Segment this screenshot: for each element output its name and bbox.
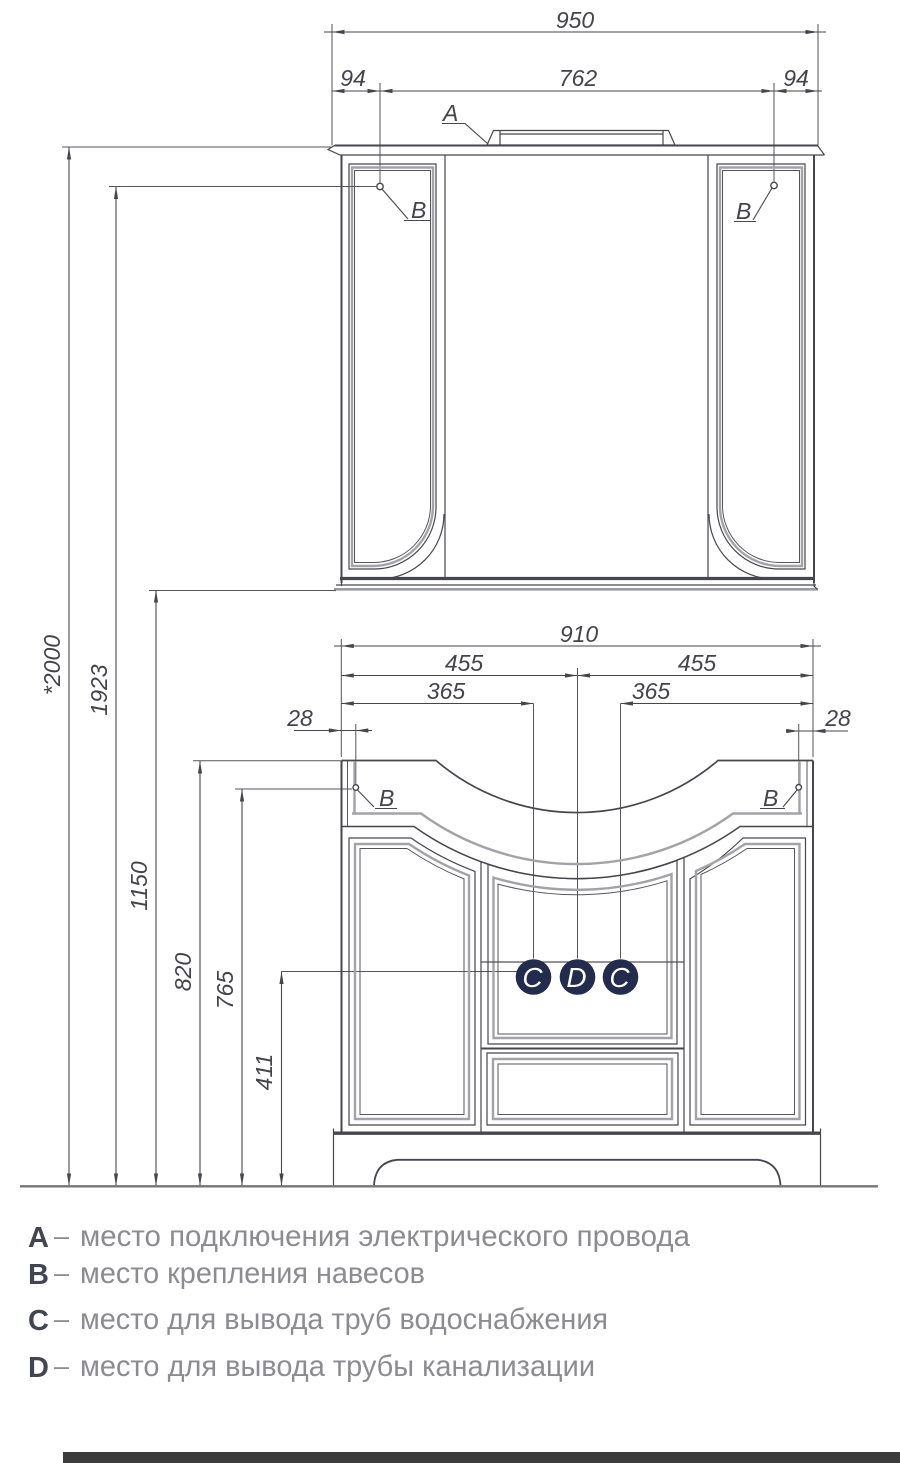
svg-text:C: C: [28, 1305, 49, 1337]
svg-text:–: –: [54, 1351, 69, 1381]
svg-text:28: 28: [824, 705, 851, 731]
svg-text:B: B: [763, 785, 778, 811]
svg-text:B: B: [28, 1259, 49, 1291]
svg-text:C: C: [522, 962, 543, 993]
svg-text:D: D: [566, 962, 586, 993]
svg-text:B: B: [379, 785, 394, 811]
svg-text:94: 94: [340, 65, 366, 91]
svg-text:1150: 1150: [126, 861, 152, 911]
svg-text:A: A: [441, 100, 458, 126]
svg-text:455: 455: [678, 650, 717, 676]
svg-text:762: 762: [559, 65, 598, 91]
svg-text:B: B: [411, 197, 426, 223]
svg-text:место для вывода трубы канализ: место для вывода трубы канализации: [80, 1350, 595, 1383]
svg-text:место подключения электрическо: место подключения электрического провода: [80, 1220, 690, 1253]
svg-text:–: –: [54, 1258, 69, 1288]
svg-text:94: 94: [783, 65, 809, 91]
svg-text:место крепления навесов: место крепления навесов: [80, 1257, 425, 1290]
svg-text:365: 365: [427, 678, 466, 704]
svg-text:D: D: [28, 1352, 49, 1384]
svg-text:365: 365: [632, 678, 671, 704]
svg-text:950: 950: [556, 7, 595, 33]
svg-text:455: 455: [445, 650, 484, 676]
svg-text:–: –: [54, 1221, 69, 1251]
svg-text:1923: 1923: [86, 664, 112, 715]
svg-text:*2000: *2000: [39, 635, 65, 695]
svg-text:765: 765: [212, 971, 238, 1010]
svg-text:820: 820: [170, 953, 196, 992]
svg-text:C: C: [609, 962, 630, 993]
svg-text:A: A: [28, 1222, 49, 1254]
svg-text:28: 28: [286, 705, 313, 731]
svg-text:место для вывода труб водоснаб: место для вывода труб водоснабжения: [80, 1303, 608, 1336]
svg-text:910: 910: [560, 621, 599, 647]
svg-text:–: –: [54, 1304, 69, 1334]
svg-text:411: 411: [251, 1054, 277, 1091]
svg-text:B: B: [736, 198, 751, 224]
